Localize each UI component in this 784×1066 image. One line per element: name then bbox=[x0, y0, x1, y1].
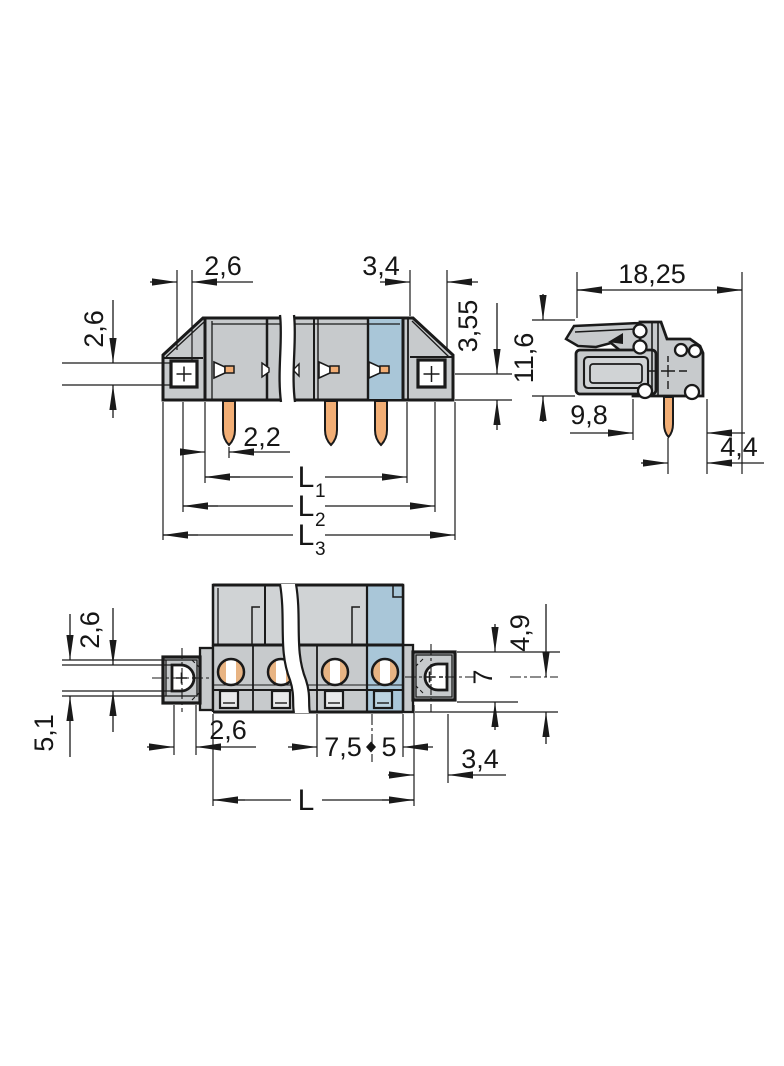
front-view: 2,6 3,4 2,6 3,55 2,2 bbox=[62, 251, 512, 560]
dim-bottom-pitch-a: 7,5 bbox=[324, 732, 362, 762]
dim-front-flange-offset: 2,6 bbox=[204, 251, 242, 281]
dim-bottom-flange-height: 5,1 bbox=[29, 714, 59, 752]
dim-side-depth: 18,25 bbox=[618, 259, 686, 289]
locking-latch bbox=[566, 323, 640, 352]
bottom-view: 2,6 5,1 2,6 7,5 5 3,4 bbox=[29, 584, 560, 817]
dim-bottom-length: L bbox=[298, 784, 315, 817]
side-view: 18,25 11,6 9,8 4,4 bbox=[509, 259, 764, 474]
dim-bottom-flange-width: 3,4 bbox=[461, 744, 499, 774]
dim-bottom-hole-width: 2,6 bbox=[209, 715, 247, 745]
front-body bbox=[163, 315, 453, 445]
dim-L1-sub: 1 bbox=[315, 481, 326, 502]
dim-front-hole-bottom: 3,55 bbox=[453, 300, 483, 353]
dim-bottom-hole-height: 2,6 bbox=[75, 611, 105, 649]
dim-side-pin-back: 4,4 bbox=[720, 432, 758, 462]
solder-pin-side bbox=[664, 397, 673, 437]
front-dimensions: 2,6 3,4 2,6 3,55 2,2 bbox=[62, 251, 512, 560]
bottom-left-flange bbox=[152, 648, 210, 712]
bottom-right-flange bbox=[413, 644, 455, 712]
dim-front-pole-width: 3,4 bbox=[362, 251, 400, 281]
drawing-canvas: 2,6 3,4 2,6 3,55 2,2 bbox=[0, 0, 784, 1066]
diamond-separator-icon bbox=[366, 742, 376, 753]
dim-side-pin-front: 9,8 bbox=[570, 400, 608, 430]
dim-side-height: 11,6 bbox=[509, 333, 539, 384]
bottom-body bbox=[152, 584, 455, 713]
dim-front-pin-offset: 2,2 bbox=[243, 422, 281, 452]
dim-bottom-pitch-b: 5 bbox=[381, 732, 396, 762]
dim-bottom-flange-depth: 7 bbox=[468, 669, 498, 684]
connector-dimension-drawing: 2,6 3,4 2,6 3,55 2,2 bbox=[0, 0, 784, 1066]
dim-L3-sub: 3 bbox=[315, 539, 326, 560]
break-lines-front bbox=[280, 315, 295, 402]
dim-bottom-center-offset: 4,9 bbox=[505, 614, 535, 652]
dim-L2-sub: 2 bbox=[315, 510, 326, 531]
dim-L3: L bbox=[298, 519, 315, 552]
dim-front-hole-height: 2,6 bbox=[79, 310, 109, 348]
coded-pole-blue bbox=[368, 319, 403, 399]
